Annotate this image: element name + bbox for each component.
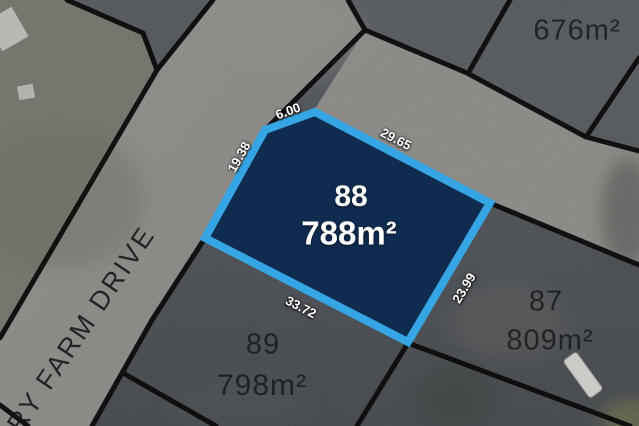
lot-map: RY FARM DRIVE 86 676m² 87 809m² 89 798m²… (0, 0, 639, 426)
aerial-map-canvas (0, 0, 639, 426)
